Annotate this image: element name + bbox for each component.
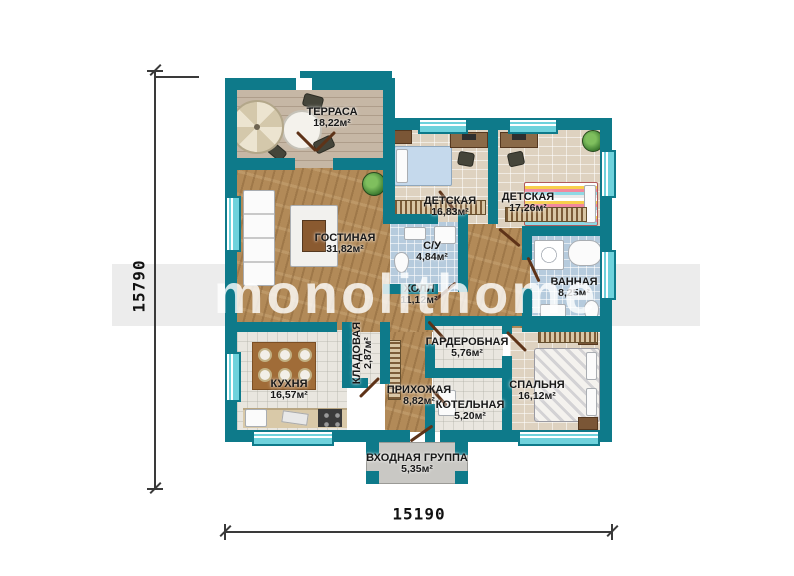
terrace-top-opening	[296, 78, 312, 90]
dimension-endbar	[224, 524, 226, 540]
room-area: 4,84м²	[416, 252, 448, 264]
dimension-endbar	[611, 524, 613, 540]
wc-sink	[404, 227, 426, 240]
kids1-dresser	[394, 130, 412, 144]
dimension-left-value: 15790	[130, 259, 149, 312]
window-living-left	[225, 196, 241, 252]
wall-bath-left-upper	[522, 226, 532, 260]
kids1-monitor	[462, 134, 476, 140]
wall-wc-right	[458, 214, 468, 292]
room-label-bedroom: СПАЛЬНЯ 16,12м²	[509, 379, 564, 403]
dimension-extension-top	[155, 76, 199, 78]
room-area: 18,22м²	[306, 118, 357, 130]
wall-kids-divider	[488, 128, 498, 224]
room-area: 31,82м²	[315, 244, 376, 256]
room-label-boiler: КОТЕЛЬНАЯ 5,20м²	[436, 399, 505, 423]
dimension-bottom-value: 15190	[392, 505, 445, 524]
room-label-porch: ВХОДНАЯ ГРУППА 5,35м²	[366, 452, 468, 476]
kids1-pillow	[396, 149, 408, 183]
floor-plan-canvas: ТЕРРАСА 18,22м² ГОСТИНАЯ 31,82м² ДЕТСКАЯ…	[0, 0, 794, 576]
window-bedroom-bottom	[518, 430, 600, 446]
room-area: 5,35м²	[366, 464, 468, 476]
wall-terrace-top-step	[300, 71, 392, 80]
wall-wardrobe-bedroom-top	[425, 316, 612, 326]
kitchen-fridge	[245, 409, 267, 427]
room-label-terrace: ТЕРРАСА 18,22м²	[306, 106, 357, 130]
room-label-storage: КЛАДОВАЯ 2,87м²	[351, 322, 375, 384]
room-area: 2,87м²	[363, 322, 375, 384]
room-label-hall: ХОЛЛ 11,12м²	[401, 283, 438, 307]
room-area: 16,12м²	[509, 391, 564, 403]
bedroom-pillow	[586, 388, 597, 416]
wall-boiler-left	[425, 404, 435, 442]
room-label-wc: С/У 4,84м²	[416, 240, 448, 264]
kids2-monitor	[512, 134, 526, 140]
wall-storage-right	[380, 322, 390, 384]
wall-terrace-living-a	[237, 158, 295, 170]
room-label-kids2: ДЕТСКАЯ 17,26м²	[502, 191, 554, 215]
wall-wardrobe-bottom	[425, 368, 512, 378]
umbrella-pole	[254, 124, 260, 130]
room-area: 16,57м²	[270, 390, 308, 402]
dimension-line-bottom	[225, 531, 612, 533]
room-label-living: ГОСТИНАЯ 31,82м²	[315, 232, 376, 256]
dimension-endbar	[147, 70, 163, 72]
bedroom-pillow	[586, 352, 597, 380]
wall-kitchen-top	[237, 322, 337, 332]
room-label-wardrobe: ГАРДЕРОБНАЯ 5,76м²	[426, 336, 509, 360]
room-label-kitchen: КУХНЯ 16,57м²	[270, 378, 308, 402]
room-label-bath: ВАННАЯ 8,25м²	[550, 276, 597, 300]
room-area: 5,20м²	[436, 411, 505, 423]
plate	[278, 348, 292, 362]
room-area: 17,26м²	[502, 203, 554, 215]
wall-bath-top	[522, 226, 612, 236]
room-area: 5,76м²	[426, 348, 509, 360]
dimension-line-left	[154, 70, 156, 490]
window-bath-right	[600, 250, 616, 300]
room-area: 8,25м²	[550, 288, 597, 300]
kitchen-stove	[318, 409, 342, 427]
plate	[258, 348, 272, 362]
window-kitchen-left	[225, 352, 241, 402]
room-label-kids1: ДЕТСКАЯ 16,83м²	[424, 195, 476, 219]
window-kids2-right	[600, 150, 616, 198]
room-area: 11,12м²	[401, 295, 438, 307]
window-kids2-top	[508, 118, 558, 134]
bath-shower	[534, 240, 564, 270]
bath-tub	[568, 240, 602, 266]
living-sofa	[243, 190, 275, 286]
wall-living-kids-divider	[383, 78, 395, 224]
window-kids1-top	[418, 118, 468, 134]
dimension-endbar	[147, 488, 163, 490]
room-area: 16,83м²	[424, 207, 476, 219]
bedroom-nightstand	[578, 417, 598, 430]
wall-terrace-living-b	[333, 158, 383, 170]
kids1-chair	[457, 151, 475, 168]
plate	[298, 348, 312, 362]
window-kitchen-bottom	[252, 430, 334, 446]
